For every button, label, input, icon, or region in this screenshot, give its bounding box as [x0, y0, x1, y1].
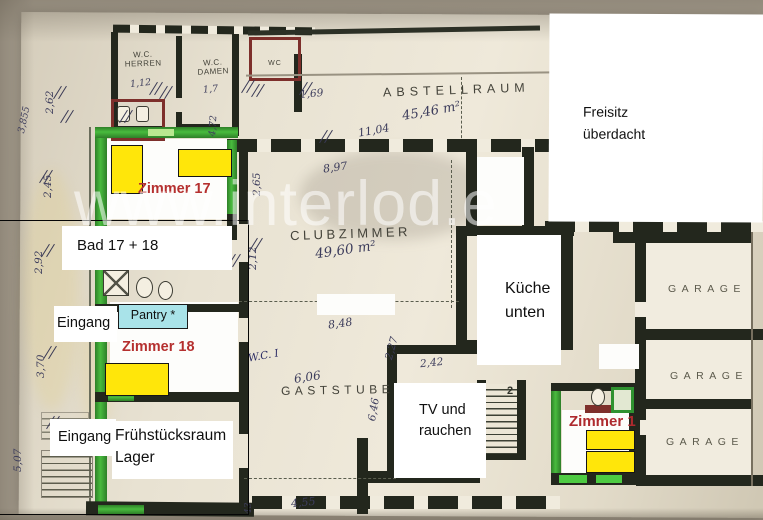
overlay-note-pantry: Pantry * [118, 304, 188, 329]
room-label-wc-small: WC [252, 60, 298, 67]
green-wall-segment [559, 475, 587, 483]
green-wall-segment [596, 475, 622, 483]
freisitz-label: Freisitz überdacht [583, 102, 646, 146]
dashed-reference-line [451, 160, 452, 308]
wall-segment [636, 475, 763, 486]
overlay-note-freisitz: Freisitz überdacht [548, 13, 763, 222]
dimension-label: 1,7 [202, 83, 218, 96]
eingang-upper-label: Eingang [57, 315, 110, 331]
zimmer17-label: Zimmer 17 [138, 181, 211, 197]
white-out-patch [317, 294, 395, 315]
green-wall-segment [551, 389, 561, 479]
overlay-note-bad: Bad 17 + 18 [62, 226, 232, 270]
wall-segment [613, 232, 752, 243]
room-label-garage-3: GARAGE [666, 436, 744, 448]
floor-plan-photo: W.C. HERREN W.C. DAMEN WC ABSTELLRAUM CL… [0, 0, 763, 520]
door-gap [148, 129, 174, 136]
overlay-note-kueche: Küche unten [477, 235, 561, 365]
overlay-note-tv: TV und rauchen [394, 383, 486, 478]
stair-count-label: 2 [507, 385, 513, 397]
overlay-note-eingang-upper: Eingang [54, 306, 117, 342]
wall-segment [466, 150, 477, 230]
bed-highlight [586, 430, 635, 450]
dimension-tick [316, 130, 332, 144]
plan-edge-line [751, 232, 753, 486]
checkered-wall [227, 139, 561, 152]
wall-segment [517, 380, 526, 460]
dimension-label: 4,72 [207, 115, 219, 137]
dimension-tick [156, 86, 172, 100]
room-label-garage-2: GARAGE [670, 370, 748, 382]
room-label-garage-1: GARAGE [668, 283, 746, 295]
bed-highlight [105, 363, 169, 396]
bed-highlight [586, 451, 635, 473]
checkered-wall [545, 221, 763, 232]
wall-segment [644, 329, 763, 340]
overlay-note-eingang-lower: Eingang [50, 419, 116, 456]
wall-segment [561, 226, 573, 350]
garage-paper [646, 233, 752, 486]
dimension-label: 2,42 [419, 356, 444, 370]
pantry-label: Pantry * [119, 308, 187, 322]
wall-segment [640, 399, 752, 409]
room-label-wc-damen: W.C. DAMEN [186, 57, 241, 78]
dimension-tick [36, 170, 52, 184]
wall-segment [176, 36, 182, 98]
white-out-patch [477, 157, 524, 225]
eingang-lower-label: Eingang [58, 429, 111, 445]
zimmer18-label: Zimmer 18 [122, 339, 195, 355]
room-label-wc-herren: W.C. HERREN [115, 49, 172, 69]
zimmer1-label: Zimmer 1 [569, 413, 636, 430]
dimension-tick [296, 82, 312, 96]
dimension-label: 2,65 [251, 173, 263, 196]
wall-segment [456, 226, 467, 350]
bad-label: Bad 17 + 18 [77, 237, 158, 254]
white-out-patch [599, 344, 639, 369]
dimension-tick [116, 110, 132, 124]
dashed-reference-line [244, 478, 396, 479]
wall-segment [387, 345, 479, 354]
dimension-tick [57, 110, 73, 124]
dimension-tick [248, 84, 264, 98]
overlay-note-fruehstuecksraum: Frühstücksraum Lager [112, 421, 233, 479]
tv-label: TV und rauchen [419, 400, 471, 442]
door-gap [635, 302, 646, 317]
toilet-fixture [591, 388, 605, 406]
kueche-label: Küche unten [505, 277, 550, 325]
bed-highlight [178, 149, 232, 177]
wall-segment [239, 152, 248, 224]
dimension-tick [50, 86, 66, 100]
toilet-fixture [136, 106, 149, 122]
fruehstuecksraum-label: Frühstücksraum Lager [115, 425, 226, 468]
dimension-label: 4,55 [290, 495, 316, 510]
shower-tray [611, 387, 634, 413]
